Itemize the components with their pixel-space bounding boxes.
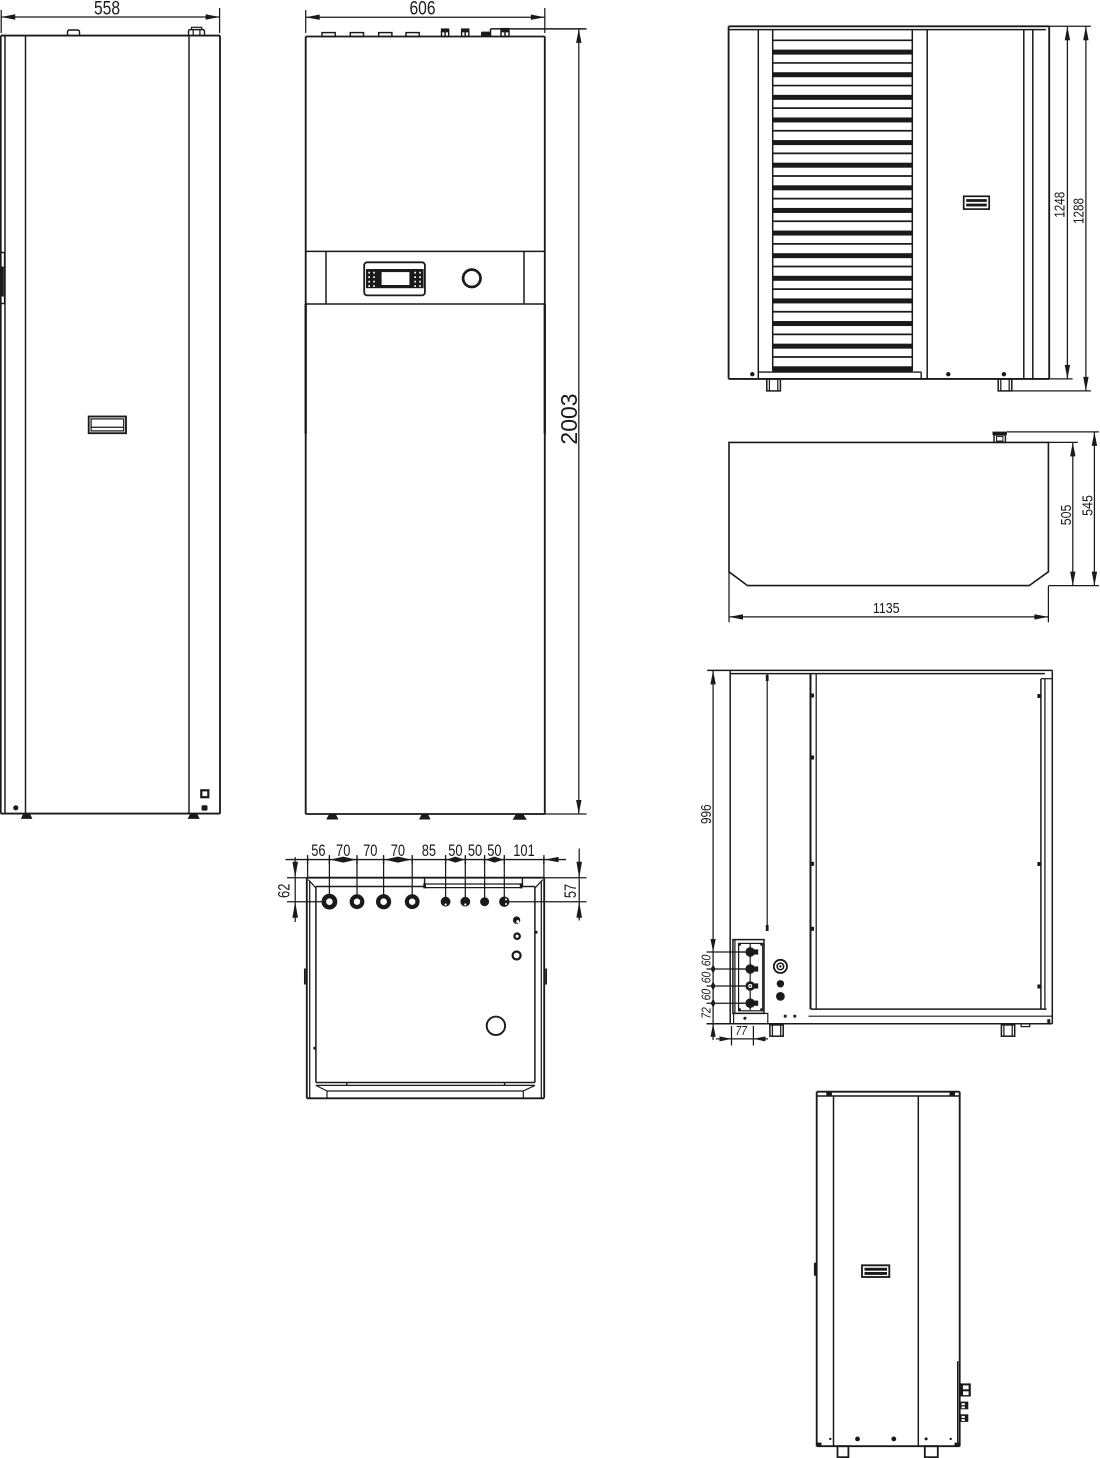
svg-text:60: 60 — [700, 971, 714, 983]
svg-text:1135: 1135 — [873, 600, 900, 616]
svg-text:50: 50 — [468, 843, 482, 861]
svg-text:56: 56 — [311, 843, 325, 861]
svg-text:60: 60 — [700, 988, 714, 1000]
svg-text:1288: 1288 — [1070, 198, 1087, 224]
svg-text:996: 996 — [698, 804, 715, 824]
svg-text:2003: 2003 — [556, 393, 582, 444]
svg-text:57: 57 — [562, 884, 580, 898]
svg-text:85: 85 — [422, 843, 436, 861]
svg-text:50: 50 — [487, 843, 501, 861]
svg-text:72: 72 — [700, 1007, 714, 1019]
svg-text:101: 101 — [513, 843, 534, 861]
svg-text:62: 62 — [276, 884, 294, 898]
svg-text:60: 60 — [700, 954, 714, 966]
svg-text:70: 70 — [336, 843, 350, 861]
svg-text:558: 558 — [94, 0, 120, 19]
svg-text:70: 70 — [363, 843, 377, 861]
svg-text:70: 70 — [391, 843, 405, 861]
svg-text:505: 505 — [1058, 504, 1074, 525]
svg-text:545: 545 — [1080, 495, 1096, 516]
svg-text:50: 50 — [448, 843, 462, 861]
svg-text:606: 606 — [409, 0, 435, 19]
svg-text:77: 77 — [736, 1024, 748, 1038]
svg-text:1248: 1248 — [1051, 192, 1068, 218]
